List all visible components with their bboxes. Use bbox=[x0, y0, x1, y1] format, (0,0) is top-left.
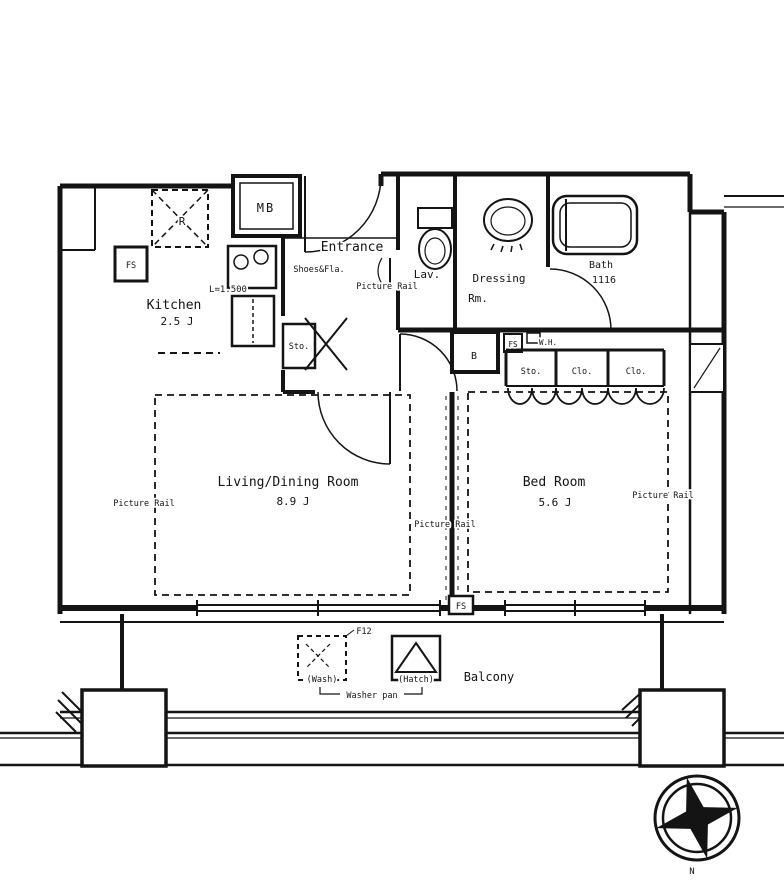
bifold-door bbox=[305, 318, 347, 370]
duct-label: B bbox=[471, 351, 477, 362]
picture-rail-left-label: Picture Rail bbox=[113, 499, 174, 509]
dressing-name-2: Rm. bbox=[468, 292, 488, 305]
bedroom-area: 5.6 J bbox=[538, 496, 571, 509]
compass-north-label: N bbox=[689, 867, 694, 877]
living-name: Living/Dining Room bbox=[218, 475, 359, 490]
lavatory-name: Lav. bbox=[414, 268, 441, 281]
hall-storage-label: Sto. bbox=[289, 342, 309, 352]
closet-1-label: Clo. bbox=[572, 367, 592, 377]
pipe-space-hall-label: FS bbox=[508, 340, 518, 349]
dressing-name-1: Dressing bbox=[473, 272, 526, 285]
washer-space-label: (Wash) bbox=[307, 675, 338, 685]
floor-plan-drawing: MB R FS Kitchen 2.5 J L=1.500 Entrance S… bbox=[0, 0, 784, 882]
bathtub-icon bbox=[553, 196, 637, 254]
outer-walls bbox=[60, 174, 784, 614]
living-door bbox=[318, 392, 390, 464]
entrance-shoes-label: Shoes&Fla. bbox=[293, 265, 344, 275]
kitchen-name: Kitchen bbox=[147, 298, 202, 313]
pipe-space-kitchen-label: FS bbox=[126, 261, 136, 271]
balcony-pillars bbox=[56, 690, 724, 766]
bedroom-door bbox=[400, 334, 457, 391]
compass-rose bbox=[646, 767, 748, 869]
picture-rail-middle-label: Picture Rail bbox=[414, 520, 475, 530]
floor-drain-label: F12 bbox=[356, 627, 371, 637]
kitchen-counter-length: L=1.500 bbox=[209, 285, 247, 295]
living-area: 8.9 J bbox=[276, 495, 309, 508]
bath-name: Bath bbox=[589, 260, 613, 271]
living-window bbox=[197, 600, 440, 616]
washer-space-box bbox=[298, 630, 354, 680]
picture-rail-right-label: Picture Rail bbox=[632, 491, 693, 501]
floor-plan: MB R FS Kitchen 2.5 J L=1.500 Entrance S… bbox=[0, 0, 784, 882]
washer-pan-label: Washer pan bbox=[346, 691, 397, 701]
balcony-name: Balcony bbox=[464, 670, 515, 684]
evacuation-hatch-box bbox=[392, 636, 440, 680]
water-heater-label: W.H. bbox=[539, 338, 557, 347]
bedroom-name: Bed Room bbox=[523, 475, 586, 490]
closet-row bbox=[506, 350, 664, 404]
lavatory-door bbox=[378, 258, 390, 284]
closet-storage-label: Sto. bbox=[521, 367, 541, 377]
toilet-icon bbox=[418, 208, 452, 269]
bath-size: 1116 bbox=[592, 275, 616, 286]
kitchen-area: 2.5 J bbox=[160, 315, 193, 328]
bedroom-window bbox=[505, 600, 645, 616]
washbasin-icon bbox=[484, 199, 532, 252]
refrigerator-label: R bbox=[179, 215, 186, 228]
meter-box-label: MB bbox=[257, 201, 275, 215]
labels: MB R FS Kitchen 2.5 J L=1.500 Entrance S… bbox=[113, 201, 694, 877]
entrance-picture-rail-label: Picture Rail bbox=[356, 282, 417, 292]
entrance-name: Entrance bbox=[321, 240, 384, 255]
pipe-space-window-label: FS bbox=[456, 602, 466, 612]
hatch-label: (Hatch) bbox=[398, 675, 434, 685]
picture-rail-lines bbox=[155, 392, 668, 610]
closet-2-label: Clo. bbox=[626, 367, 646, 377]
